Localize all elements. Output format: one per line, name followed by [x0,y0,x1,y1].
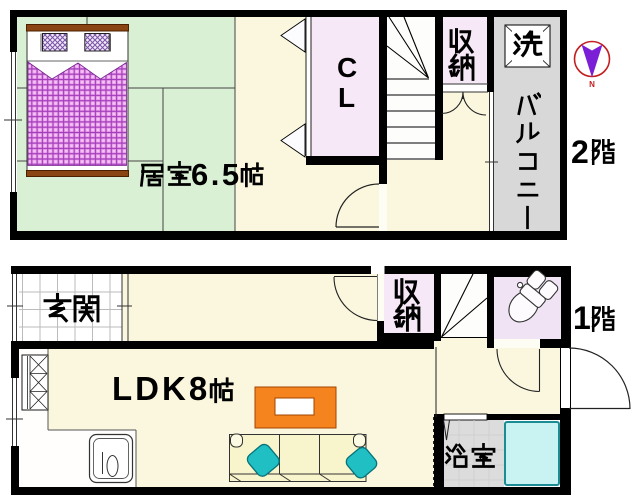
svg-text:C: C [337,52,357,83]
svg-text:6.5: 6.5 [191,157,242,192]
svg-text:2: 2 [571,134,589,170]
svg-text:LDK8: LDK8 [112,370,210,407]
svg-text:N: N [589,80,595,89]
svg-text:1: 1 [573,300,591,336]
svg-text:L: L [338,82,355,113]
